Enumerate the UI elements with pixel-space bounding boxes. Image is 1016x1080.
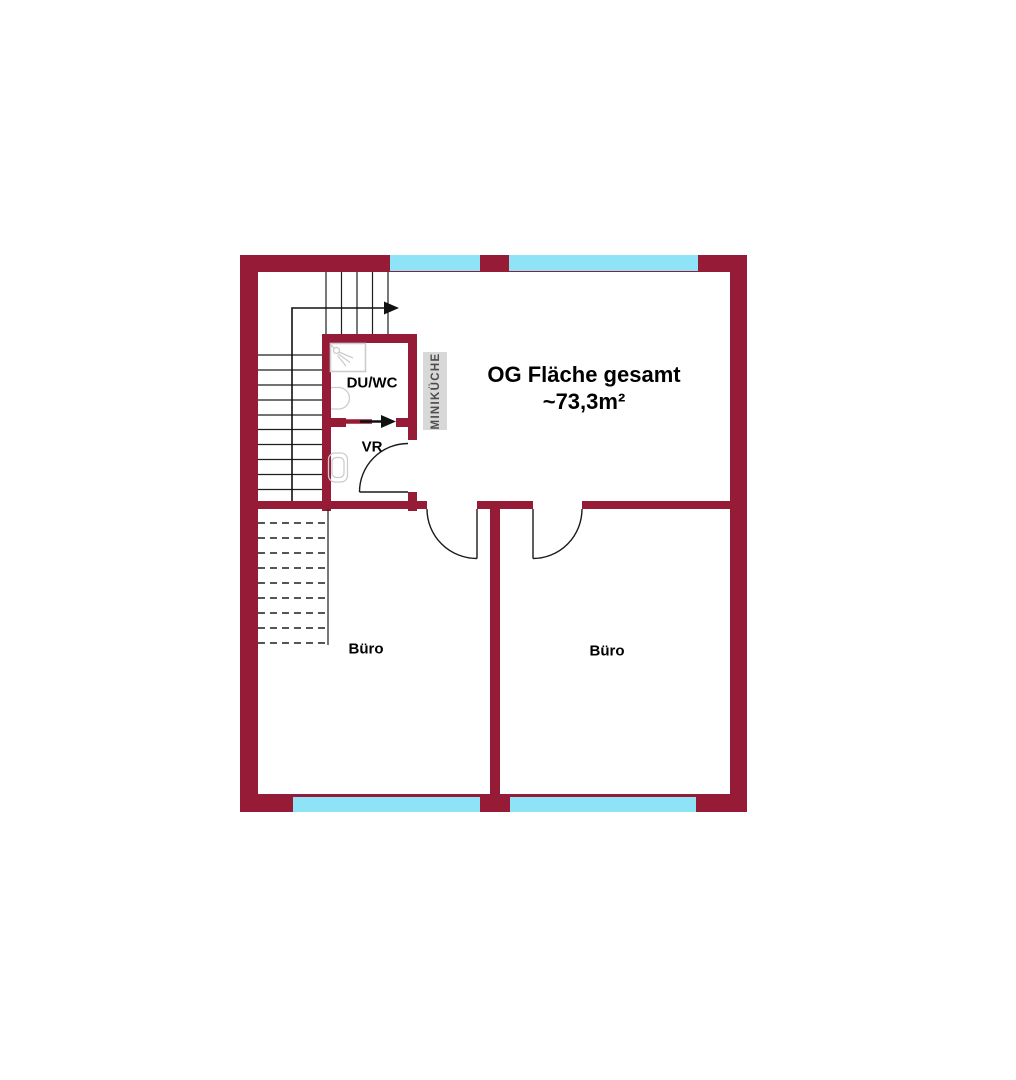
room-label-vr: VR [362, 439, 383, 456]
office-right-door [533, 509, 582, 559]
stair-walk-arrow-icon [384, 302, 399, 315]
floorplan-page: MINIKÜCHE OG Fläche gesamt ~73,3m² DU/WC… [0, 0, 1016, 1080]
room-label-duwc: DU/WC [347, 375, 398, 392]
interior-walls [258, 334, 730, 794]
fixtures [329, 344, 366, 483]
office-right-door-arc [533, 509, 582, 559]
room-label-buero-left: Büro [349, 641, 384, 658]
window-top-right [509, 255, 698, 271]
kitchenette-label: MINIKÜCHE [429, 353, 442, 430]
window-bottom-right [510, 797, 696, 812]
floorplan-canvas: MINIKÜCHE OG Fläche gesamt ~73,3m² DU/WC… [0, 0, 1016, 1080]
room-label-buero-right: Büro [590, 643, 625, 660]
office-left-door-arc [427, 509, 477, 559]
area-title-line1: OG Fläche gesamt [487, 362, 681, 387]
office-left-door [427, 509, 477, 559]
corridor-wall-middle [477, 501, 533, 509]
outer-wall-right [730, 255, 747, 812]
corridor-wall-right [582, 501, 730, 509]
window-bottom-left [293, 797, 480, 812]
washbasin-icon [329, 453, 348, 482]
kitchenette: MINIKÜCHE [423, 352, 447, 430]
outer-wall-left [240, 255, 258, 812]
duwc-wall-top [322, 334, 417, 343]
area-title-line2: ~73,3m² [543, 389, 626, 414]
office-divider-wall [490, 509, 500, 794]
entrance-arrow-head-icon [381, 415, 396, 428]
labels: OG Fläche gesamt ~73,3m² DU/WC VR Büro B… [347, 362, 682, 660]
corridor-wall-left [258, 501, 427, 509]
duwc-wall-bottom-right [396, 418, 417, 427]
window-top-left [390, 255, 480, 271]
